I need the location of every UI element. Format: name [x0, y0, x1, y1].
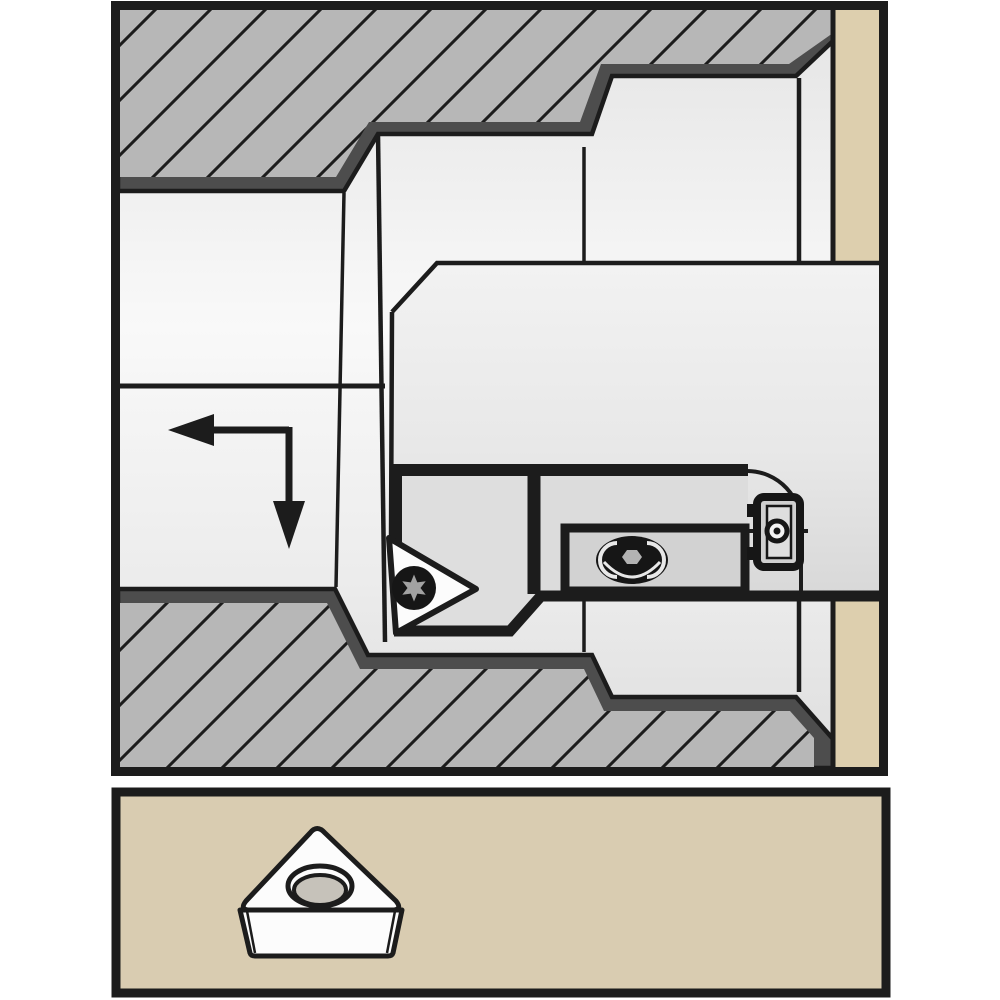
insert-hole-bore — [294, 875, 346, 905]
insert-panel-frame — [116, 792, 886, 993]
sectioned-workpiece-and-boring-bar-view — [116, 6, 884, 772]
cartridge-screw-tab-bottom — [747, 547, 757, 560]
machining-application-illustration — [0, 0, 1000, 1000]
cartridge-screw-dot — [774, 528, 781, 535]
cartridge-screw-tab-top — [747, 504, 757, 517]
triangular-insert-detail-view — [116, 792, 886, 993]
technical-illustration-canvas — [0, 0, 1000, 1000]
insert-side-face — [240, 910, 402, 956]
